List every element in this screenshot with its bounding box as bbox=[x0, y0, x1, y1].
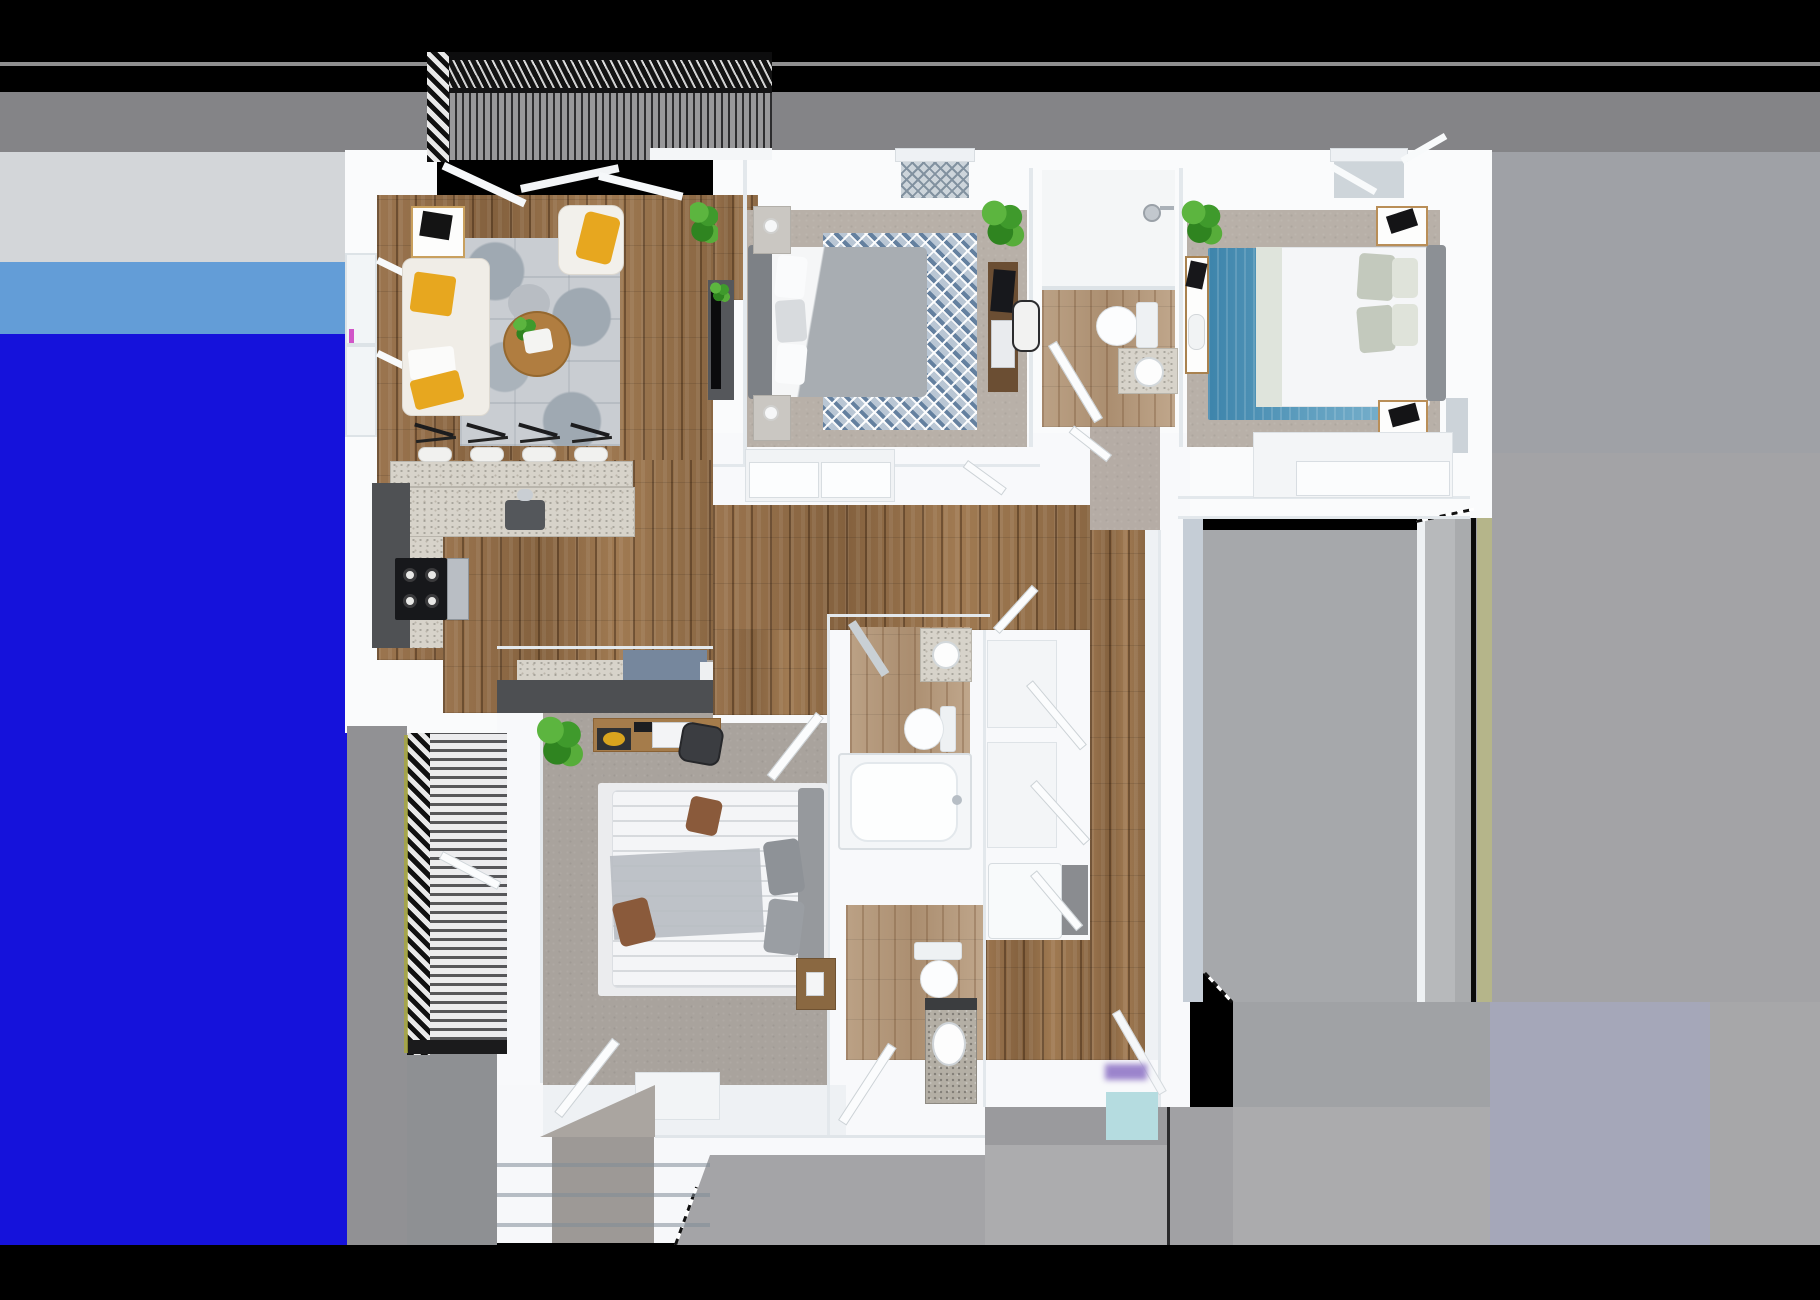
right-black-line bbox=[1471, 518, 1476, 1002]
tv-screen bbox=[711, 291, 721, 389]
balcony2-bottom-rail bbox=[407, 1040, 507, 1054]
bg-block-below-entry bbox=[677, 1155, 985, 1245]
bed3-pillow-gray-1 bbox=[762, 838, 805, 896]
stool-2-seat bbox=[470, 447, 504, 462]
oven-door bbox=[447, 558, 469, 620]
balcony2-hatch-edge bbox=[407, 733, 430, 1055]
closet-shelf-upper bbox=[987, 640, 1057, 728]
kitchen-faucet bbox=[517, 489, 533, 501]
stairs-treads bbox=[497, 1137, 710, 1243]
bed1-lamp-south bbox=[763, 405, 779, 421]
artifact-magenta bbox=[349, 329, 354, 343]
bed1-closet-door-left bbox=[749, 462, 819, 498]
stove-burner-4 bbox=[425, 594, 439, 608]
bed2-closet-door bbox=[1296, 461, 1450, 496]
bed1-plant bbox=[981, 198, 1025, 248]
balcony-mesh bbox=[427, 60, 772, 88]
bath1-glass-line bbox=[1042, 286, 1175, 290]
living-plant bbox=[690, 198, 718, 246]
floor-hall-wood bbox=[713, 505, 1090, 630]
wall-bathcol-hall bbox=[983, 630, 986, 1107]
panel-edge-dark bbox=[1455, 518, 1472, 1002]
bg-bottomright-gray bbox=[1710, 1002, 1820, 1245]
bath3-sink bbox=[932, 1022, 966, 1066]
bath2-toilet-bowl bbox=[904, 708, 944, 750]
bath2-sink bbox=[932, 641, 960, 669]
artifact-purple bbox=[1105, 1064, 1147, 1080]
bed1-pillow-1 bbox=[774, 255, 808, 300]
bathtub-faucet bbox=[952, 795, 962, 805]
bg-block-right-lower bbox=[1233, 1107, 1490, 1245]
bed3-pillow-gray-2 bbox=[763, 898, 805, 956]
wall-bed2-bottom-b bbox=[1178, 516, 1470, 519]
bed2-throw bbox=[1256, 247, 1282, 407]
bed1-lamp-north bbox=[763, 218, 779, 234]
bg-block-mid bbox=[1170, 1107, 1233, 1245]
bed2-pillow-1 bbox=[1356, 253, 1395, 301]
bath1-toilet-bowl bbox=[1096, 306, 1138, 346]
balcony2-olive-line bbox=[404, 735, 408, 1053]
floor-bath1-shower bbox=[1042, 170, 1175, 290]
bath3-toilet-tank bbox=[914, 942, 962, 960]
floorplan-render bbox=[0, 0, 1820, 1300]
bath1-shower-bar bbox=[1160, 206, 1174, 210]
bg-top-gray-band bbox=[0, 92, 1820, 152]
bg-below-balcony bbox=[407, 1052, 497, 1245]
bg-bottom-black bbox=[0, 1245, 1820, 1300]
floor-hall-bottom-wood bbox=[985, 940, 1090, 1060]
wall-bed1-left bbox=[743, 152, 747, 467]
bg-left-lightgray bbox=[0, 152, 347, 262]
sofa-pillow-yellow-1 bbox=[409, 271, 456, 316]
wall-hall-right bbox=[1158, 530, 1161, 1107]
bath3-toilet-bowl bbox=[920, 960, 958, 998]
panel-edge-white bbox=[1417, 518, 1425, 1002]
bg-left-blue bbox=[0, 334, 347, 1245]
kitchen-sink bbox=[505, 500, 545, 530]
window-bed2-sill bbox=[1330, 148, 1408, 162]
kitchen-south-counter bbox=[517, 660, 623, 682]
bg-top-divider bbox=[0, 62, 1820, 66]
bath1-toilet-tank bbox=[1136, 302, 1158, 348]
bg-strip-left-of-balcony bbox=[347, 726, 407, 1245]
panel-edge-left bbox=[1183, 518, 1203, 1002]
balcony-door-jamb bbox=[650, 148, 772, 160]
bed3-monitor bbox=[634, 722, 652, 732]
stool-3-seat bbox=[522, 447, 556, 462]
bg-right-gray-lower bbox=[1472, 453, 1820, 1002]
neighbor-panel bbox=[1203, 530, 1417, 1002]
bed3-plant bbox=[536, 714, 584, 768]
bed2-headboard bbox=[1426, 245, 1446, 401]
bathtub-inner bbox=[850, 762, 958, 842]
wall-bath2-top bbox=[827, 614, 990, 617]
balcony-post-left bbox=[427, 52, 449, 162]
bed3-dresser-top bbox=[623, 650, 707, 682]
bed3-desk-chair bbox=[677, 721, 725, 768]
bed1-pillow-3 bbox=[774, 343, 807, 385]
balcony-top-rail bbox=[427, 52, 772, 60]
bed1-pillow-2 bbox=[775, 299, 808, 343]
bed3-desk-bowl bbox=[603, 732, 625, 746]
bed1-closet-door-right bbox=[821, 462, 891, 498]
window-left-2 bbox=[345, 345, 377, 437]
bath3-counter-edge bbox=[925, 998, 977, 1010]
bed1-headboard bbox=[748, 245, 772, 399]
bg-left-skyblue bbox=[0, 262, 347, 334]
bg-bottomright-bluegray bbox=[1490, 1002, 1712, 1245]
kitchen-bar-counter bbox=[390, 461, 633, 487]
kitchen-south-cabinet bbox=[497, 680, 713, 713]
panel-edge-mid bbox=[1425, 518, 1455, 1002]
stove-burner-3 bbox=[403, 594, 417, 608]
bath1-sink bbox=[1134, 357, 1164, 387]
stool-1-seat bbox=[418, 447, 452, 462]
bed2-plant bbox=[1181, 198, 1223, 246]
wall-kitchen-south bbox=[497, 646, 713, 649]
bed1-desk-chair bbox=[1012, 300, 1040, 352]
laptop-on-table bbox=[419, 211, 453, 240]
bath1-showerhead bbox=[1143, 204, 1161, 222]
floor-hall-south-wood bbox=[713, 630, 827, 715]
stove-burner-2 bbox=[425, 568, 439, 582]
stool-4-seat bbox=[574, 447, 608, 462]
bg-block-right-upper bbox=[1233, 1002, 1490, 1107]
bed2-pillow-3 bbox=[1392, 258, 1418, 298]
bg-right-gray-upper bbox=[1492, 152, 1820, 453]
floor-vestibule-carpet bbox=[1090, 427, 1160, 530]
bed2-console-lamp bbox=[1188, 314, 1205, 350]
floor-hall-vert-wood bbox=[1090, 530, 1145, 1060]
bed2-pillow-4 bbox=[1392, 304, 1418, 346]
wall-balcony-bed3 bbox=[540, 733, 543, 1083]
artifact-cyan bbox=[1106, 1092, 1158, 1140]
bg-block-hall-lower bbox=[985, 1145, 1167, 1245]
bed3-phone bbox=[806, 972, 824, 996]
stove-burner-1 bbox=[403, 568, 417, 582]
stove bbox=[395, 558, 447, 620]
window-bed1-sill bbox=[895, 148, 975, 162]
window-bed1-lattice bbox=[901, 162, 969, 198]
bed2-pillow-2 bbox=[1356, 305, 1396, 354]
right-olive-strip bbox=[1477, 518, 1492, 1002]
console-flowers bbox=[709, 282, 731, 302]
